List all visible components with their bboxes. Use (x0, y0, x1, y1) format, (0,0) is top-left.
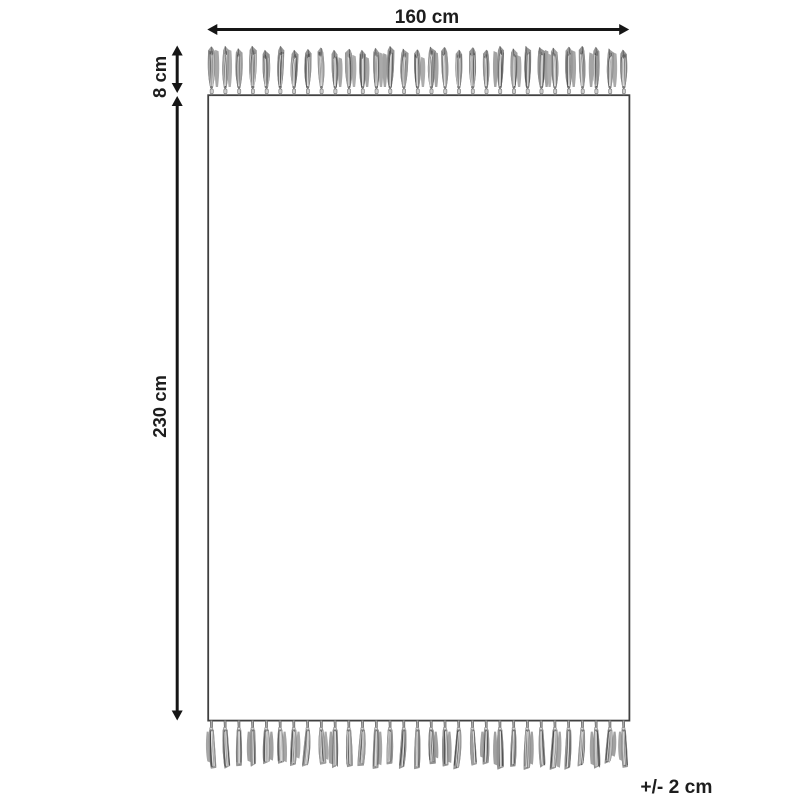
svg-text:8 cm: 8 cm (149, 56, 170, 98)
svg-text:230 cm: 230 cm (149, 375, 170, 438)
svg-text:+/- 2 cm: +/- 2 cm (640, 777, 712, 798)
svg-text:160 cm: 160 cm (395, 7, 459, 28)
